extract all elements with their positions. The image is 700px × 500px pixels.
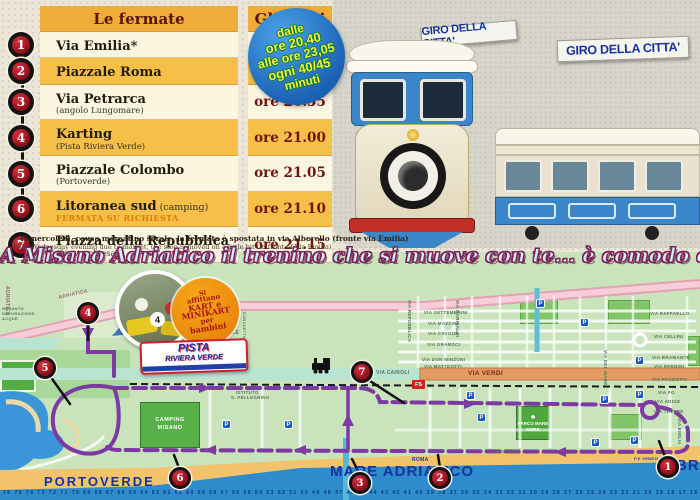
helmet-shape [135, 298, 148, 311]
giro-della-citta-sign: GIRO DELLA CITTA' [557, 36, 690, 63]
parco-mare-nord-area: ♣ PARCO MARE NORD [516, 406, 550, 440]
train-photo: GIRO DELLA CITTA' GIRO DELLA CITTA' [333, 0, 700, 248]
map-street-label: VIA MAZZINI [428, 321, 458, 326]
map-street-label: VIA TEVERE [654, 409, 684, 414]
map-street-label: VIA BRAMANTE [652, 355, 690, 360]
camping-label: CAMPING [155, 417, 184, 425]
gold-emblem [407, 129, 419, 141]
slogan-banner: A Misano Adriatico il trenino che si muo… [0, 243, 700, 267]
map-street-label: VIA REPUBBLICA [407, 300, 412, 342]
locomotive-front [341, 28, 491, 246]
parking-icon: P [591, 438, 600, 447]
map-street-label: VIA ADIGE [655, 399, 680, 404]
train-wagon [495, 128, 700, 232]
map-street-label: CANALETTA [242, 312, 247, 339]
stop-number-badge: 4 [8, 125, 34, 151]
stop-name-cell: 3Via Petrarca(angolo Lungomare) [40, 85, 238, 121]
stop-name-cell: 4Karting(Pista Riviera Verde) [40, 120, 238, 156]
kart-rental-badge: Si affittano KART e MINIKART per bambini [172, 278, 239, 345]
timetable-row: 5Piazzale Colombo(Portoverde)ore 21.05 [40, 156, 332, 192]
map-stop-marker: 2 [429, 467, 451, 489]
brochure-page: CAMPING MISANO ♣ PARCO MARE NORD FS ADRI… [0, 0, 700, 500]
wagon-fascia [495, 145, 700, 155]
map-green-block [608, 300, 650, 324]
wagon-panel [508, 203, 556, 219]
portoverde-label: PORTOVERDE [44, 474, 155, 489]
map-green-block [688, 336, 700, 366]
parking-icon: P [630, 436, 639, 445]
beach-establishment-numbers: 76 75 74 73 72 71 70 69 68 67 66 65 64 6… [3, 490, 699, 496]
map-street-label: VIA VERDI [468, 370, 503, 377]
stop-number-badge: 5 [8, 161, 34, 187]
map-street-label: VIA GARIBALDI [455, 300, 460, 337]
timetable-row: 4Karting(Pista Riviera Verde)ore 21.00 [40, 120, 332, 156]
map-street-label: VIA CELLINI [654, 334, 683, 339]
parking-icon: P [600, 395, 609, 404]
wagon-lower-panel [495, 197, 700, 225]
stop-name-cell: 2Piazzale Roma [40, 58, 238, 84]
pista-riviera-verde-logo: PISTA RIVIERA VERDE [139, 338, 248, 375]
boiler-face [380, 143, 446, 209]
stop-time: ore 21.00 [248, 120, 332, 156]
parking-icon: P [222, 420, 231, 429]
kart-number: 4 [150, 312, 165, 327]
parking-icon: P [635, 356, 644, 365]
stop-name-cell: 5Piazzale Colombo(Portoverde) [40, 156, 238, 192]
parking-icon: P [466, 391, 475, 400]
parking-icon: P [536, 299, 545, 308]
parco-label: PARCO MARE NORD [517, 421, 549, 433]
parking-icon: P [580, 318, 589, 327]
map-street-label: VIA PAGNOTTI [652, 377, 687, 382]
parking-icon: P [635, 390, 644, 399]
camping-label: MISANO [158, 425, 183, 433]
top-panel: GIRO DELLA CITTA' GIRO DELLA CITTA' [0, 0, 700, 252]
map-street-label: VIA SETTEMBRINI [424, 310, 468, 315]
stop-number-badge: 6 [8, 196, 34, 222]
map-street-label: VIA RAFFAELLO [650, 311, 689, 316]
map-street-label: ACQUE [2, 316, 18, 321]
map-street-label: VIA MATTEOTTI [424, 364, 462, 369]
map-stop-marker: 6 [169, 467, 191, 489]
logo-strip [142, 363, 246, 372]
sports-field [0, 360, 36, 392]
train-cab [351, 72, 473, 126]
schedule-badge: dalle ore 20,40 alle ore 23,05 ogni 40/4… [248, 8, 345, 105]
parking-icon: P [284, 420, 293, 429]
map-stop-marker: 5 [34, 357, 56, 379]
map-stop-marker: 1 [657, 456, 679, 478]
stop-name-cell: 1Via Emilia* [40, 32, 238, 58]
logo-line: RIVIERA VERDE [165, 353, 223, 363]
wagon-window [645, 160, 683, 192]
stop-number-badge: 1 [8, 32, 34, 58]
wagon-window [551, 160, 589, 192]
map-street-label: LEOPARDI [494, 449, 519, 454]
stop-time: ore 21.05 [248, 156, 332, 192]
footnote-italian: * Il mercoledì, causa mercatino serale, … [14, 234, 354, 243]
cab-window [420, 79, 466, 121]
wagon-window [598, 160, 636, 192]
train-boiler [355, 124, 469, 222]
map-street-label: S. PELLEGRINO [231, 395, 270, 400]
map-street-label: VIA GRAMSCI [427, 342, 460, 347]
wagon-roof [495, 128, 700, 145]
railway-station-marker: FS [412, 380, 425, 389]
parking-icon: P [477, 413, 486, 422]
map-stop-marker: 3 [349, 472, 371, 494]
stop-on-request-note: FERMATA SU RICHIESTA [56, 214, 234, 224]
beach-zone-label: BRAS [676, 457, 700, 474]
map-street-label: VIA BERNINI [654, 364, 684, 369]
wagon-body [495, 155, 700, 197]
train-bumper [349, 218, 475, 233]
map-stop-marker: 4 [77, 302, 99, 324]
wagon-window [504, 160, 542, 192]
boiler-face-ring [388, 151, 438, 201]
cab-window [360, 79, 406, 121]
stops-column-header: Le fermate [40, 6, 238, 32]
stop-number-badge: 3 [8, 89, 34, 115]
map-street-label: VIA DEL MARE [603, 350, 608, 386]
camping-misano-area: CAMPING MISANO [140, 402, 200, 448]
map-stop-marker: 7 [351, 361, 373, 383]
stop-number-badge: 2 [8, 58, 34, 84]
map-street-label: VIA PO [658, 390, 675, 395]
tree-icon: ♣ [531, 414, 536, 421]
wagon-wheel [645, 226, 659, 240]
stop-time: ore 21.10 [248, 192, 332, 228]
map-street-label: VIA DON MINZONI [422, 357, 465, 362]
wagon-wheel [525, 226, 539, 240]
wagon-panel [568, 203, 616, 219]
map-street-label: P.E VENEZIA [634, 456, 662, 461]
timetable-row: 6Litoranea sud (camping)FERMATA SU RICHI… [40, 192, 332, 228]
boiler-face-core [398, 161, 428, 191]
map-street-label: VIA EMILIA [677, 418, 682, 445]
stop-name-cell: 6Litoranea sud (camping)FERMATA SU RICHI… [40, 192, 238, 228]
wagon-panel [628, 203, 676, 219]
map-street-label: VIA CAIROLI [376, 370, 409, 376]
